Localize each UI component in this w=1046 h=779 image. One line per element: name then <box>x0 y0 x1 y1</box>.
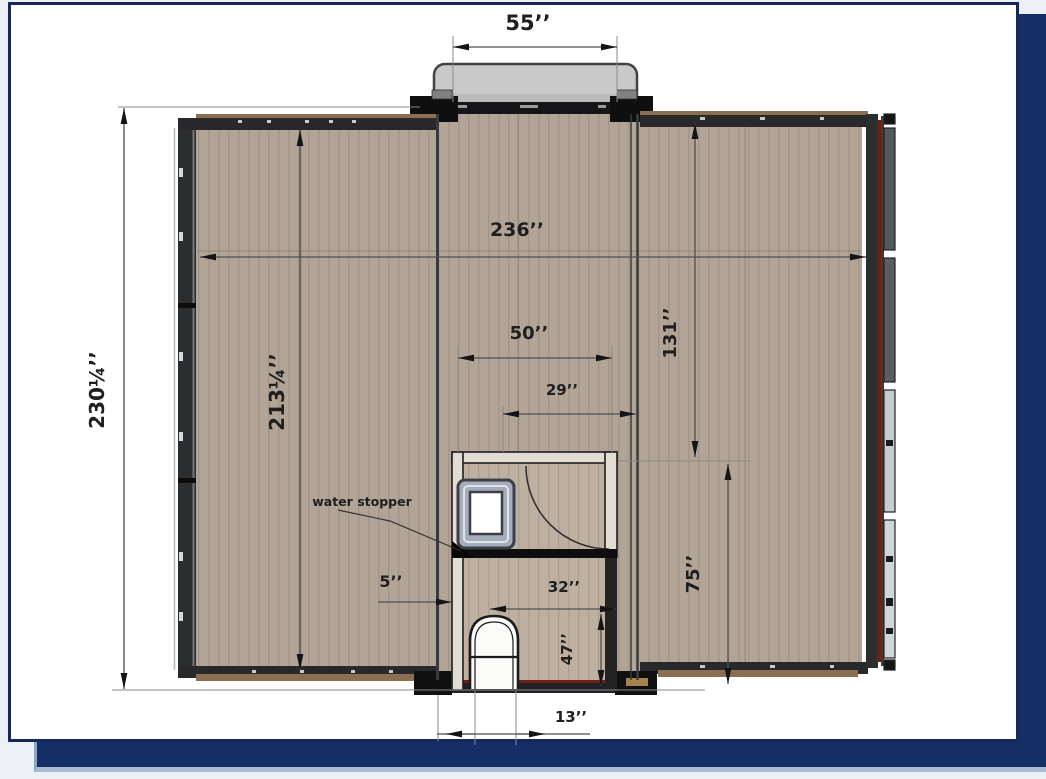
shower-pan <box>458 480 514 548</box>
hinge-tab-left <box>432 90 452 99</box>
dim-label-bath-width: 32’’ <box>548 578 580 596</box>
dim-label-overall-width: 236’’ <box>490 219 544 241</box>
dim-label-bath-outer-width: 50’’ <box>510 323 549 344</box>
right-wall <box>866 114 878 668</box>
arched-door <box>470 616 518 689</box>
dim-label-right-section-depth: 131’’ <box>660 307 681 358</box>
dim-label-bath-lower-depth: 47’’ <box>558 633 576 665</box>
dim-label-wall-offset: 5’’ <box>379 572 402 591</box>
dim-label-porch-width: 55’’ <box>505 11 550 35</box>
dim-label-lower-right-depth: 75’’ <box>683 555 704 594</box>
dim-door-offset: 13’’ <box>437 708 590 734</box>
dim-overall-depth: 230¼’’ <box>85 108 124 689</box>
dim-porch-width: 55’’ <box>453 11 617 47</box>
hinge-block-bottom-left <box>414 671 452 695</box>
dim-label-overall-depth: 230¼’’ <box>85 351 109 429</box>
right-wing-bottom-trim <box>658 670 858 677</box>
right-wall-outer-panels <box>884 114 895 670</box>
dim-label-wing-depth: 213¼’’ <box>265 353 289 431</box>
bathroom-right-wall-lower <box>605 553 617 690</box>
arched-door-outline <box>470 616 518 689</box>
bathroom-right-wall <box>605 452 617 557</box>
bathroom-top-wall <box>452 452 617 463</box>
hinge-tab-right <box>617 90 637 99</box>
floors <box>196 113 862 684</box>
left-wing-bottom-trim <box>196 674 437 681</box>
floor-plan: 55’’ 236’’ 230¼’’ 213¼’’ 131’’ 50’’ 29’’ <box>0 0 1046 779</box>
floor-grain-right <box>640 124 862 664</box>
dim-label-door-offset: 13’’ <box>555 708 587 726</box>
dim-label-bath-inner-width: 29’’ <box>546 381 578 399</box>
right-wall-red-stripe <box>877 120 881 662</box>
shower-curb <box>452 549 617 558</box>
water-stopper-label: water stopper <box>312 494 412 509</box>
shower-pan-basin <box>470 492 502 534</box>
left-wing-top-wall <box>178 118 437 130</box>
right-wing-top-wall <box>640 115 872 127</box>
